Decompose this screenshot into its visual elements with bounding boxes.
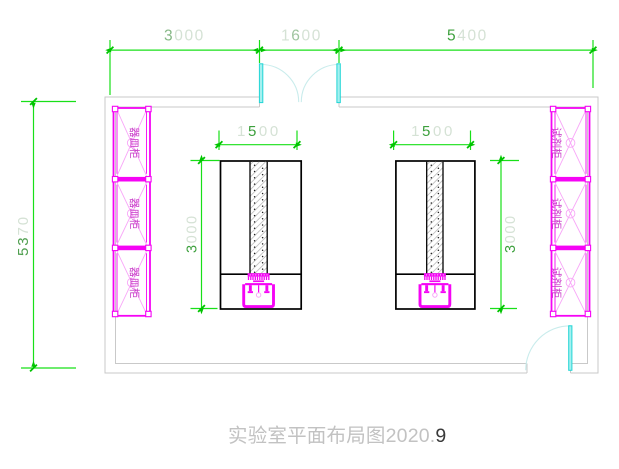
svg-text:1500: 1500 <box>237 123 281 140</box>
svg-text:器皿柜: 器皿柜 <box>128 198 141 230</box>
svg-text:3000: 3000 <box>185 214 201 253</box>
svg-text:实验室平面布局图2020.9: 实验室平面布局图2020.9 <box>228 425 446 447</box>
svg-text:5400: 5400 <box>447 28 488 45</box>
svg-text:5370: 5370 <box>15 215 32 256</box>
svg-text:3000: 3000 <box>164 28 205 45</box>
svg-text:试剂柜: 试剂柜 <box>550 267 563 299</box>
svg-text:1600: 1600 <box>281 28 322 45</box>
svg-text:器皿柜: 器皿柜 <box>128 127 141 159</box>
svg-text:1500: 1500 <box>411 123 455 140</box>
svg-text:3000: 3000 <box>503 214 519 253</box>
svg-text:器皿柜: 器皿柜 <box>128 267 141 299</box>
svg-text:试剂柜: 试剂柜 <box>550 127 563 159</box>
svg-text:试剂柜: 试剂柜 <box>550 198 563 230</box>
